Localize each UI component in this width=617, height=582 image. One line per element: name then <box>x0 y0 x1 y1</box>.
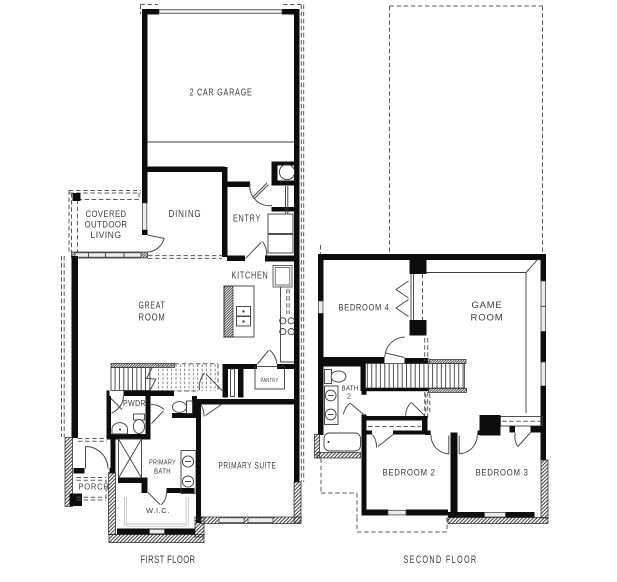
svg-text:FIRST FLOOR: FIRST FLOOR <box>141 554 196 566</box>
svg-text:GREAT: GREAT <box>139 301 166 312</box>
svg-text:ROOM: ROOM <box>139 313 166 324</box>
svg-text:PRIMARY SUITE: PRIMARY SUITE <box>219 461 277 472</box>
svg-text:ROOM: ROOM <box>471 313 504 324</box>
svg-text:PWDR: PWDR <box>123 399 146 408</box>
svg-text:BEDROOM 3: BEDROOM 3 <box>476 468 529 479</box>
svg-text:OUTDOOR: OUTDOOR <box>85 220 128 230</box>
svg-text:2 CAR GARAGE: 2 CAR GARAGE <box>190 88 253 99</box>
svg-text:ENTRY: ENTRY <box>233 214 261 225</box>
svg-text:SECOND FLOOR: SECOND FLOOR <box>404 554 478 566</box>
svg-text:DINING: DINING <box>169 209 202 220</box>
svg-text:BEDROOM 4: BEDROOM 4 <box>339 303 390 314</box>
svg-text:PANTRY: PANTRY <box>261 378 279 384</box>
svg-text:PORCH: PORCH <box>79 482 110 492</box>
svg-text:COVERED: COVERED <box>86 209 127 219</box>
svg-text:BEDROOM 2: BEDROOM 2 <box>383 468 436 479</box>
svg-text:GAME: GAME <box>472 300 503 311</box>
svg-text:KITCHEN: KITCHEN <box>232 271 269 282</box>
svg-text:2: 2 <box>347 392 351 401</box>
svg-text:BATH: BATH <box>154 467 171 476</box>
svg-text:PRIMARY: PRIMARY <box>149 458 176 467</box>
svg-text:W.I.C.: W.I.C. <box>146 506 170 515</box>
svg-text:LIVING: LIVING <box>91 230 122 240</box>
